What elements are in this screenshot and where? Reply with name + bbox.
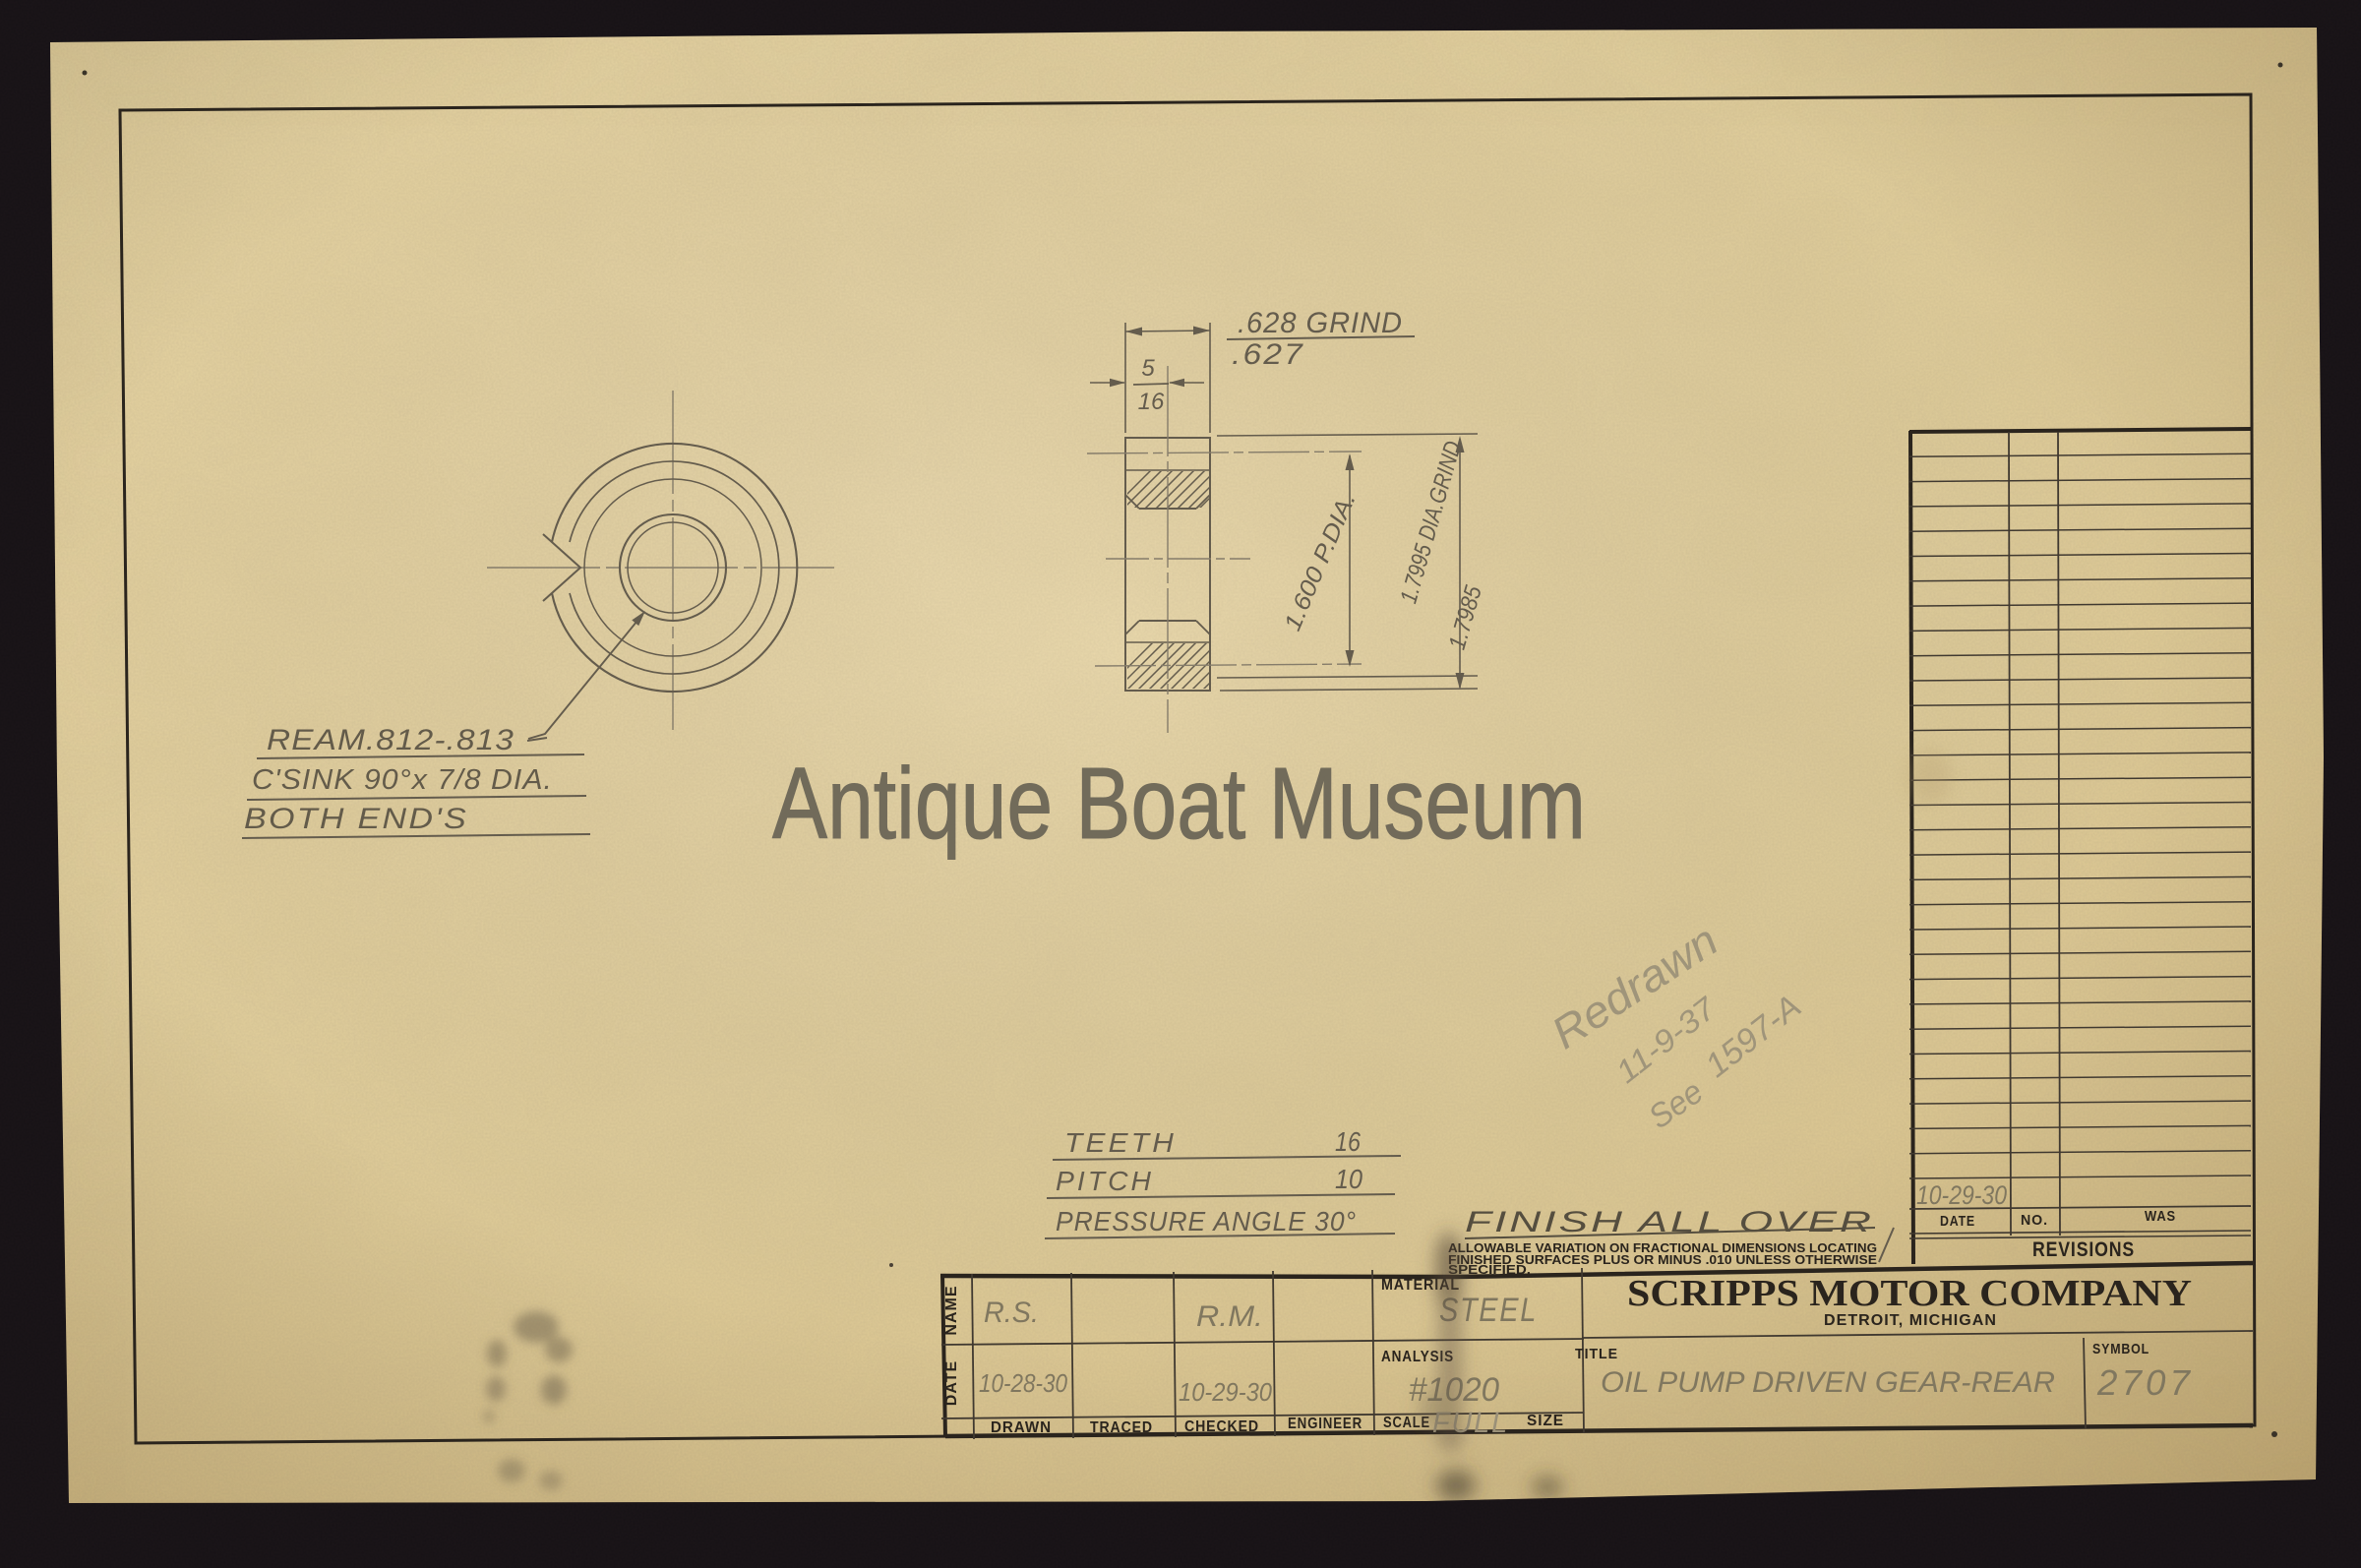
svg-text:PRESSURE ANGLE 30°: PRESSURE ANGLE 30°	[1056, 1206, 1357, 1236]
svg-text:TRACED: TRACED	[1090, 1419, 1153, 1436]
svg-text:SYMBOL: SYMBOL	[2092, 1341, 2149, 1357]
svg-text:SIZE: SIZE	[1527, 1413, 1564, 1429]
svg-text:NO.: NO.	[2021, 1212, 2048, 1229]
svg-text:TITLE: TITLE	[1575, 1346, 1618, 1362]
svg-text:ENGINEER: ENGINEER	[1288, 1416, 1362, 1432]
svg-text:DATE: DATE	[1940, 1213, 1975, 1230]
svg-text:.627: .627	[1232, 338, 1304, 371]
svg-text:WAS: WAS	[2145, 1208, 2176, 1225]
svg-text:C'SINK 90°x 7/8 DIA.: C'SINK 90°x 7/8 DIA.	[252, 764, 553, 796]
svg-text:16: 16	[1138, 389, 1165, 415]
svg-text:.628 GRIND: .628 GRIND	[1238, 307, 1403, 339]
svg-text:DETROIT, MICHIGAN: DETROIT, MICHIGAN	[1824, 1312, 1997, 1329]
svg-text:OIL PUMP DRIVEN GEAR-REAR: OIL PUMP DRIVEN GEAR-REAR	[1601, 1366, 2055, 1399]
svg-text:10-29-30: 10-29-30	[1916, 1180, 2007, 1210]
svg-text:NAME: NAME	[943, 1285, 960, 1335]
svg-text:5: 5	[1141, 355, 1155, 382]
svg-text:CHECKED: CHECKED	[1184, 1418, 1259, 1435]
svg-text:2707: 2707	[2096, 1362, 2194, 1403]
svg-text:10-29-30: 10-29-30	[1179, 1377, 1272, 1407]
svg-text:PITCH: PITCH	[1056, 1166, 1154, 1196]
svg-text:REAM.812-.813: REAM.812-.813	[267, 724, 515, 756]
svg-text:TEETH: TEETH	[1064, 1127, 1177, 1158]
svg-text:SCRIPPS MOTOR COMPANY: SCRIPPS MOTOR COMPANY	[1627, 1273, 2192, 1314]
svg-text:16: 16	[1335, 1126, 1361, 1157]
svg-text:Antique Boat Museum: Antique Boat Museum	[772, 747, 1586, 860]
svg-text:DATE: DATE	[943, 1360, 960, 1406]
svg-text:BOTH END'S: BOTH END'S	[244, 803, 468, 835]
svg-text:10-28-30: 10-28-30	[979, 1368, 1067, 1398]
svg-text:10: 10	[1335, 1164, 1362, 1194]
svg-text:DRAWN: DRAWN	[991, 1419, 1052, 1436]
svg-text:R.M.: R.M.	[1196, 1300, 1263, 1333]
svg-text:REVISIONS: REVISIONS	[2032, 1238, 2135, 1261]
svg-text:R.S.: R.S.	[984, 1297, 1039, 1329]
